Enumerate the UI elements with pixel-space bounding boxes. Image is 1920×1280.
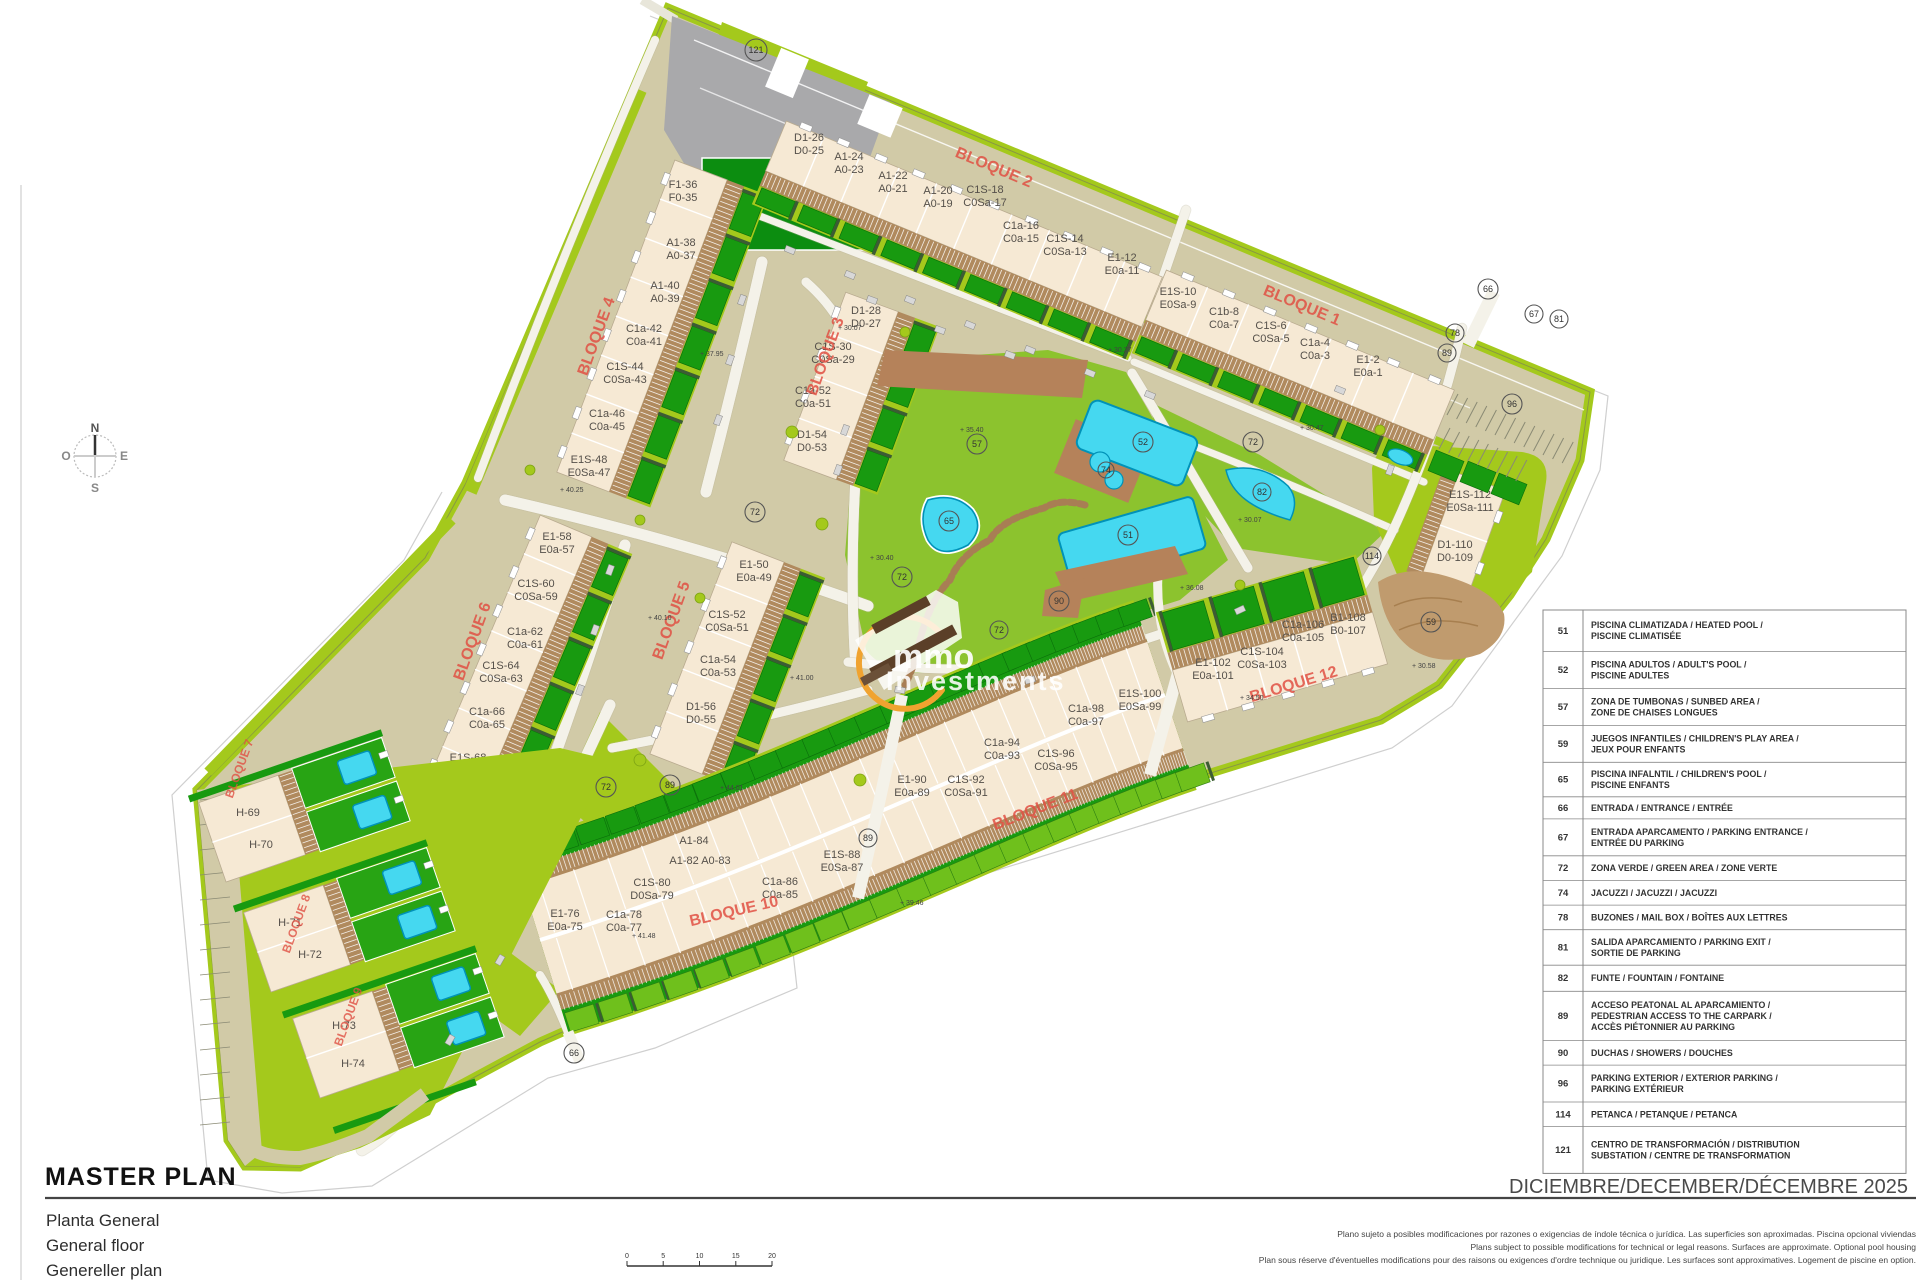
svg-text:+ 30.58: + 30.58	[1412, 663, 1436, 670]
svg-text:90: 90	[1054, 596, 1064, 606]
svg-text:A1-84: A1-84	[679, 835, 708, 847]
svg-text:BUZONES / MAIL BOX / BOÎTES AU: BUZONES / MAIL BOX / BOÎTES AUX LETTRES	[1591, 911, 1788, 922]
svg-text:O: O	[61, 449, 70, 463]
svg-text:78: 78	[1450, 328, 1460, 338]
svg-text:C1b-8C0a-7: C1b-8C0a-7	[1209, 306, 1239, 331]
svg-text:89: 89	[1442, 348, 1452, 358]
svg-text:121: 121	[1555, 1145, 1572, 1156]
svg-text:C1S-64C0Sa-63: C1S-64C0Sa-63	[479, 660, 522, 685]
svg-text:66: 66	[569, 1048, 579, 1058]
svg-text:C1a-16C0a-15: C1a-16C0a-15	[1003, 220, 1039, 245]
svg-text:74: 74	[1558, 888, 1569, 899]
svg-text:+ 40.10: + 40.10	[648, 615, 672, 622]
svg-text:C1S-18C0Sa-17: C1S-18C0Sa-17	[963, 184, 1006, 209]
svg-text:72: 72	[750, 507, 760, 517]
svg-text:59: 59	[1558, 739, 1569, 750]
svg-text:51: 51	[1558, 626, 1569, 637]
svg-text:MASTER PLAN: MASTER PLAN	[45, 1163, 237, 1191]
svg-text:C1S-80D0Sa-79: C1S-80D0Sa-79	[630, 877, 673, 902]
svg-text:57: 57	[972, 439, 982, 449]
svg-text:114: 114	[1555, 1109, 1571, 1120]
svg-text:E1-90E0a-89: E1-90E0a-89	[894, 774, 929, 799]
svg-text:65: 65	[1558, 775, 1569, 786]
svg-text:15: 15	[732, 1253, 740, 1260]
svg-text:90: 90	[1558, 1048, 1569, 1059]
svg-text:A1-24A0-23: A1-24A0-23	[834, 151, 863, 176]
svg-text:E1S-112E0Sa-111: E1S-112E0Sa-111	[1446, 489, 1493, 514]
svg-text:E1S-88E0Sa-87: E1S-88E0Sa-87	[821, 849, 864, 874]
svg-text:0: 0	[625, 1253, 629, 1260]
svg-text:E1-76E0a-75: E1-76E0a-75	[547, 908, 582, 933]
svg-text:+ 30.47: + 30.47	[1300, 425, 1324, 432]
svg-text:72: 72	[601, 782, 611, 792]
svg-text:C1S-60C0Sa-59: C1S-60C0Sa-59	[514, 578, 557, 603]
svg-text:+ 30.07: + 30.07	[1238, 517, 1262, 524]
svg-text:E1-102E0a-101: E1-102E0a-101	[1192, 657, 1234, 682]
svg-text:C1a-66C0a-65: C1a-66C0a-65	[469, 706, 505, 731]
svg-text:E1-2E0a-1: E1-2E0a-1	[1353, 354, 1382, 379]
svg-text:81: 81	[1558, 943, 1569, 954]
svg-text:72: 72	[1248, 437, 1258, 447]
svg-text:A1-20A0-19: A1-20A0-19	[923, 185, 952, 210]
svg-text:PETANCA / PETANQUE / PETANCA: PETANCA / PETANQUE / PETANCA	[1591, 1109, 1738, 1119]
svg-text:C1a-54C0a-53: C1a-54C0a-53	[700, 654, 736, 679]
svg-text:D1-54D0-53: D1-54D0-53	[797, 429, 827, 454]
svg-text:82: 82	[1257, 487, 1267, 497]
svg-text:+ 30.40: + 30.40	[870, 555, 894, 562]
svg-text:A1-22A0-21: A1-22A0-21	[878, 170, 907, 195]
svg-text:72: 72	[994, 625, 1004, 635]
svg-text:Plan sous réserve d'éventuelle: Plan sous réserve d'éventuelles modifica…	[1259, 1255, 1916, 1265]
svg-text:Investments: Investments	[886, 666, 1066, 696]
svg-text:52: 52	[1558, 665, 1569, 676]
svg-text:H-74: H-74	[341, 1058, 365, 1070]
svg-text:67: 67	[1529, 309, 1539, 319]
svg-text:72: 72	[1558, 863, 1569, 874]
svg-text:67: 67	[1558, 832, 1569, 843]
svg-text:72: 72	[897, 572, 907, 582]
svg-text:C1a-62C0a-61: C1a-62C0a-61	[507, 626, 543, 651]
svg-text:+ 34.50: + 34.50	[1240, 695, 1264, 702]
svg-text:D1-56D0-55: D1-56D0-55	[686, 701, 716, 726]
svg-text:D1-110D0-109: D1-110D0-109	[1437, 539, 1473, 564]
svg-text:E1-58E0a-57: E1-58E0a-57	[539, 531, 574, 556]
svg-text:C1S-104C0Sa-103: C1S-104C0Sa-103	[1237, 646, 1287, 671]
svg-text:89: 89	[665, 780, 675, 790]
svg-text:E1S-10E0Sa-9: E1S-10E0Sa-9	[1160, 286, 1197, 311]
svg-text:A1-38A0-37: A1-38A0-37	[666, 237, 695, 262]
svg-text:C1S-44C0Sa-43: C1S-44C0Sa-43	[603, 361, 646, 386]
svg-text:+ 30.07: + 30.07	[838, 325, 862, 332]
svg-text:57: 57	[1558, 702, 1569, 713]
svg-text:C1a-42C0a-41: C1a-42C0a-41	[626, 323, 662, 348]
svg-text:52: 52	[1138, 437, 1148, 447]
svg-text:+ 40.25: + 40.25	[560, 487, 584, 494]
svg-text:+ 44.01: + 44.01	[720, 785, 744, 792]
svg-text:74: 74	[1101, 465, 1111, 475]
svg-text:89: 89	[863, 833, 873, 843]
svg-text:+ 37.95: + 37.95	[700, 351, 724, 358]
svg-text:C1S-92C0Sa-91: C1S-92C0Sa-91	[944, 774, 987, 799]
svg-text:A1-40A0-39: A1-40A0-39	[650, 280, 679, 305]
svg-text:ENTRADA / ENTRANCE / ENTRÉE: ENTRADA / ENTRANCE / ENTRÉE	[1591, 803, 1733, 813]
svg-text:B1-108B0-107: B1-108B0-107	[1330, 612, 1365, 637]
svg-text:Plano sujeto a posibles modifi: Plano sujeto a posibles modificaciones p…	[1337, 1229, 1916, 1239]
svg-text:20: 20	[768, 1253, 776, 1260]
svg-text:C1S-14C0Sa-13: C1S-14C0Sa-13	[1043, 233, 1086, 258]
svg-text:82: 82	[1558, 973, 1569, 984]
svg-text:General floor: General floor	[46, 1236, 145, 1255]
svg-text:+ 41.00: + 41.00	[790, 675, 814, 682]
svg-text:5: 5	[661, 1253, 665, 1260]
svg-text:JACUZZI / JACUZZI / JACUZZI: JACUZZI / JACUZZI / JACUZZI	[1591, 888, 1717, 898]
svg-text:C1a-46C0a-45: C1a-46C0a-45	[589, 408, 625, 433]
svg-text:+ 36.08: + 36.08	[1180, 585, 1204, 592]
svg-text:A1-82 A0-83: A1-82 A0-83	[669, 855, 730, 867]
svg-text:E: E	[120, 449, 128, 463]
svg-text:Planta General: Planta General	[46, 1211, 159, 1230]
svg-text:H-72: H-72	[298, 949, 322, 961]
svg-text:E1-50E0a-49: E1-50E0a-49	[736, 559, 771, 584]
svg-text:121: 121	[748, 45, 763, 55]
svg-text:C1a-98C0a-97: C1a-98C0a-97	[1068, 703, 1104, 728]
svg-text:+ 35.40: + 35.40	[960, 427, 984, 434]
svg-text:C1S-6C0Sa-5: C1S-6C0Sa-5	[1252, 320, 1289, 345]
svg-text:DUCHAS / SHOWERS / DOUCHES: DUCHAS / SHOWERS / DOUCHES	[1591, 1048, 1733, 1058]
svg-text:C1a-106C0a-105: C1a-106C0a-105	[1282, 619, 1324, 644]
svg-text:51: 51	[1123, 530, 1133, 540]
svg-text:Plans subject to possible modi: Plans subject to possible modifications …	[1470, 1242, 1916, 1252]
svg-text:+ 30.27: + 30.27	[1108, 347, 1132, 354]
svg-text:F1-36F0-35: F1-36F0-35	[669, 179, 698, 204]
svg-text:DICIEMBRE/DECEMBER/DÉCEMBRE 20: DICIEMBRE/DECEMBER/DÉCEMBRE 2025	[1509, 1175, 1908, 1198]
svg-text:C1a-94C0a-93: C1a-94C0a-93	[984, 737, 1020, 762]
svg-text:H-69: H-69	[236, 807, 260, 819]
svg-text:65: 65	[944, 516, 954, 526]
svg-text:E1-12E0a-11: E1-12E0a-11	[1105, 252, 1140, 277]
svg-text:C1S-52C0Sa-51: C1S-52C0Sa-51	[705, 609, 748, 634]
svg-text:E1S-48E0Sa-47: E1S-48E0Sa-47	[568, 454, 611, 479]
svg-text:89: 89	[1558, 1011, 1569, 1022]
svg-text:66: 66	[1483, 284, 1493, 294]
svg-text:FUNTE / FOUNTAIN / FONTAINE: FUNTE / FOUNTAIN / FONTAINE	[1591, 973, 1724, 983]
svg-text:H-70: H-70	[249, 839, 273, 851]
svg-text:114: 114	[1365, 551, 1379, 561]
svg-text:81: 81	[1554, 314, 1564, 324]
svg-text:E1S-100E0Sa-99: E1S-100E0Sa-99	[1119, 688, 1162, 713]
svg-text:10: 10	[696, 1253, 704, 1260]
svg-text:66: 66	[1558, 803, 1569, 814]
svg-text:N: N	[91, 421, 100, 435]
svg-text:Genereller plan: Genereller plan	[46, 1261, 162, 1280]
svg-text:78: 78	[1558, 912, 1569, 923]
svg-text:96: 96	[1507, 399, 1517, 409]
svg-text:S: S	[91, 481, 99, 495]
svg-text:C1a-78C0a-77: C1a-78C0a-77	[606, 909, 642, 934]
svg-text:C1a-4C0a-3: C1a-4C0a-3	[1300, 337, 1330, 362]
svg-text:59: 59	[1426, 617, 1436, 627]
svg-text:+ 39.46: + 39.46	[900, 900, 924, 907]
svg-text:+ 41.48: + 41.48	[632, 933, 656, 940]
svg-text:C1S-96C0Sa-95: C1S-96C0Sa-95	[1034, 748, 1077, 773]
svg-text:D1-26D0-25: D1-26D0-25	[794, 132, 824, 157]
svg-text:ZONA VERDE / GREEN AREA / ZONE: ZONA VERDE / GREEN AREA / ZONE VERTE	[1591, 863, 1777, 873]
svg-text:96: 96	[1558, 1079, 1569, 1090]
